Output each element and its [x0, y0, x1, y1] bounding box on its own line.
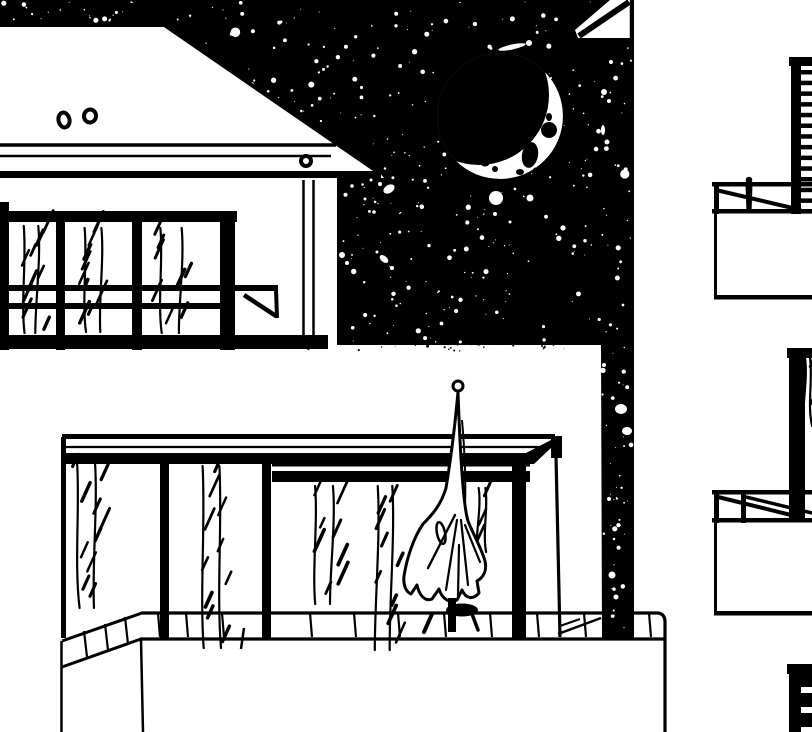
noise-speck: [368, 341, 369, 342]
star-icon: [493, 242, 494, 243]
star-icon: [373, 143, 374, 144]
noise-speck: [478, 343, 481, 346]
star-icon: [363, 281, 366, 284]
star-icon: [454, 309, 458, 313]
star-icon: [495, 311, 499, 315]
star-icon: [425, 101, 426, 102]
star-icon: [618, 519, 620, 521]
moon-crater-icon: [541, 122, 557, 138]
star-icon: [574, 251, 575, 252]
star-icon: [69, 2, 70, 3]
star-icon: [356, 217, 357, 218]
star-icon: [424, 32, 429, 37]
star-icon: [572, 252, 575, 255]
star-icon: [240, 12, 244, 16]
glass-left-post: [0, 202, 9, 350]
star-icon: [239, 1, 243, 5]
star-icon: [404, 152, 406, 154]
louver-window-bottom: [787, 664, 812, 732]
star-icon: [283, 38, 287, 42]
star-icon: [402, 134, 403, 135]
noise-speck: [395, 346, 396, 347]
splash-icon: [614, 595, 619, 600]
star-icon: [364, 187, 365, 188]
balcony-bottom-bar: [0, 335, 328, 349]
star-icon: [102, 16, 107, 21]
splash-icon: [526, 40, 532, 46]
star-icon: [624, 534, 625, 535]
star-icon: [391, 155, 392, 156]
star-icon: [613, 538, 616, 541]
splash-icon: [493, 212, 497, 216]
rail-bottom: [712, 209, 812, 214]
splash-icon: [609, 60, 613, 64]
star-icon: [412, 179, 414, 181]
splash-icon: [615, 404, 627, 414]
splash-icon: [390, 266, 394, 270]
louver-slat: [801, 188, 812, 193]
star-icon: [318, 71, 320, 73]
star-icon: [453, 249, 456, 252]
rail-top: [712, 490, 812, 495]
louver-slat: [801, 81, 812, 86]
star-icon: [604, 146, 609, 151]
star-icon: [322, 68, 325, 71]
star-icon: [621, 62, 624, 65]
star-icon: [623, 436, 624, 437]
star-icon: [122, 11, 123, 12]
splash-icon: [345, 261, 349, 265]
star-icon: [588, 173, 593, 178]
star-icon: [581, 168, 582, 169]
splash-icon: [509, 221, 512, 224]
splash-icon: [605, 140, 610, 145]
star-icon: [423, 179, 427, 183]
star-icon: [555, 233, 557, 235]
star-icon: [330, 98, 331, 99]
star-icon: [465, 220, 469, 224]
splash-icon: [489, 191, 503, 205]
star-icon: [556, 236, 561, 241]
curtain-fold-line: [485, 488, 486, 552]
star-icon: [586, 186, 588, 188]
star-icon: [630, 237, 631, 238]
star-icon: [394, 24, 397, 27]
star-icon: [609, 323, 612, 326]
star-icon: [617, 546, 621, 550]
star-icon: [616, 245, 621, 250]
star-icon: [340, 113, 341, 114]
star-icon: [373, 198, 374, 199]
star-icon: [400, 303, 401, 304]
star-icon: [449, 307, 450, 308]
star-icon: [613, 76, 618, 81]
star-icon: [334, 28, 335, 29]
noise-speck: [499, 344, 500, 345]
star-icon: [409, 62, 410, 63]
noise-speck: [381, 346, 382, 347]
star-icon: [459, 2, 460, 3]
star-icon: [361, 183, 364, 186]
star-icon: [628, 190, 630, 192]
star-icon: [115, 11, 118, 14]
star-icon: [505, 301, 506, 302]
star-icon: [627, 220, 628, 221]
star-icon: [582, 174, 584, 176]
star-icon: [590, 244, 592, 246]
header-line: [272, 464, 530, 467]
star-icon: [573, 108, 574, 109]
star-icon: [406, 281, 407, 282]
noise-speck: [553, 344, 555, 346]
star-icon: [416, 205, 418, 207]
star-icon: [569, 162, 570, 163]
star-icon: [393, 325, 394, 326]
star-icon: [531, 173, 532, 174]
star-icon: [473, 22, 477, 26]
splash-icon: [622, 427, 632, 435]
star-icon: [93, 18, 98, 23]
star-icon: [89, 15, 90, 16]
star-icon: [600, 368, 605, 373]
star-icon: [620, 487, 622, 489]
star-icon: [624, 103, 625, 104]
star-icon: [619, 260, 622, 263]
noise-speck: [444, 346, 446, 348]
star-icon: [523, 196, 525, 198]
louver-slat: [801, 156, 812, 161]
noise-speck: [345, 342, 346, 343]
star-icon: [109, 19, 111, 21]
star-icon: [410, 258, 412, 260]
rail-end-cap: [276, 289, 277, 318]
splash-icon: [343, 164, 348, 169]
star-icon: [541, 13, 546, 18]
star-icon: [483, 213, 484, 214]
noise-speck: [544, 346, 546, 348]
star-icon: [617, 268, 619, 270]
star-icon: [458, 298, 462, 302]
star-icon: [399, 213, 400, 214]
corner-post-left: [61, 437, 66, 638]
star-icon: [387, 138, 388, 139]
star-icon: [407, 29, 408, 30]
star-icon: [572, 69, 574, 71]
star-icon: [598, 318, 601, 321]
star-icon: [560, 225, 565, 230]
star-icon: [594, 81, 595, 82]
star-icon: [619, 475, 621, 477]
star-icon: [456, 214, 458, 216]
star-icon: [267, 90, 270, 93]
star-icon: [360, 96, 364, 100]
star-icon: [583, 239, 586, 242]
star-icon: [435, 341, 437, 343]
star-icon: [485, 314, 486, 315]
star-icon: [472, 272, 474, 274]
star-icon: [271, 78, 276, 83]
star-icon: [589, 318, 590, 319]
star-icon: [629, 443, 634, 448]
star-icon: [514, 188, 517, 191]
star-icon: [509, 244, 510, 245]
star-icon: [326, 65, 328, 67]
star-icon: [130, 1, 132, 3]
star-icon: [576, 291, 581, 296]
star-icon: [542, 338, 546, 342]
star-icon: [432, 30, 433, 31]
star-icon: [444, 309, 445, 310]
star-icon: [395, 304, 398, 307]
star-icon: [423, 146, 424, 147]
illustration-page: [0, 0, 812, 732]
star-icon: [132, 2, 133, 3]
moon-crater-icon: [458, 146, 464, 151]
star-icon: [594, 147, 599, 152]
noise-speck: [453, 350, 455, 352]
star-icon: [41, 18, 42, 19]
star-icon: [466, 205, 471, 210]
star-icon: [596, 129, 601, 134]
star-icon: [390, 276, 391, 277]
star-icon: [430, 338, 431, 339]
star-icon: [418, 202, 419, 203]
star-icon: [84, 9, 86, 11]
noise-speck: [448, 348, 450, 350]
star-icon: [507, 273, 508, 274]
star-icon: [408, 231, 410, 233]
star-icon: [25, 7, 27, 9]
star-icon: [386, 332, 388, 334]
splash-icon: [378, 182, 382, 186]
noise-speck: [321, 342, 322, 343]
slab-edge: [714, 522, 717, 613]
star-icon: [459, 340, 462, 343]
star-icon: [384, 167, 387, 170]
corner-post-right-stub: [551, 436, 562, 458]
star-icon: [398, 64, 402, 68]
louver-slat: [801, 113, 812, 118]
louver-slat-gap: [801, 687, 812, 693]
splash-icon: [527, 195, 534, 202]
star-icon: [22, 2, 26, 6]
star-icon: [319, 11, 320, 12]
moon-crater-icon: [499, 135, 513, 147]
star-icon: [623, 502, 625, 504]
star-icon: [225, 18, 226, 19]
star-icon: [475, 295, 476, 296]
star-icon: [468, 27, 469, 28]
star-icon: [549, 176, 551, 178]
star-icon: [586, 159, 587, 160]
star-icon: [421, 231, 422, 232]
star-icon: [616, 487, 617, 488]
moon-crater-icon: [516, 169, 524, 175]
star-icon: [536, 31, 539, 34]
star-icon: [410, 11, 411, 12]
star-icon: [412, 104, 414, 106]
star-icon: [398, 231, 401, 234]
star-icon: [612, 526, 617, 531]
star-icon: [389, 266, 390, 267]
star-icon: [333, 93, 335, 95]
star-icon: [390, 203, 391, 204]
noise-speck: [459, 350, 460, 351]
star-icon: [427, 244, 430, 247]
splash-icon: [364, 198, 367, 201]
star-icon: [470, 196, 471, 197]
star-icon: [601, 234, 603, 236]
star-icon: [343, 240, 345, 242]
star-icon: [569, 93, 571, 95]
star-icon: [590, 2, 591, 3]
star-icon: [625, 385, 629, 389]
star-icon: [412, 49, 417, 54]
noise-speck: [486, 341, 488, 343]
splash-icon: [607, 99, 611, 103]
star-icon: [351, 326, 355, 330]
star-icon: [611, 588, 612, 589]
star-icon: [371, 25, 373, 27]
star-icon: [607, 245, 608, 246]
louver-slat: [801, 91, 812, 96]
star-icon: [357, 235, 358, 236]
star-icon: [573, 185, 575, 187]
curtain-fold-line: [202, 466, 203, 648]
star-icon: [502, 19, 503, 20]
star-icon: [584, 254, 585, 255]
star-icon: [189, 17, 190, 18]
star-icon: [549, 73, 550, 74]
noise-speck: [322, 343, 323, 344]
star-icon: [483, 299, 484, 300]
star-icon: [300, 9, 301, 10]
star-icon: [371, 54, 375, 58]
pergola-roof-line: [62, 434, 555, 439]
star-icon: [423, 336, 427, 340]
louver-slat: [801, 166, 812, 171]
star-icon: [393, 151, 395, 153]
star-icon: [290, 89, 293, 92]
noise-speck: [358, 349, 360, 351]
slab-bottom: [714, 295, 812, 300]
star-icon: [606, 331, 607, 332]
star-icon: [437, 141, 439, 143]
star-icon: [425, 281, 426, 282]
star-icon: [503, 318, 504, 319]
star-icon: [294, 101, 295, 102]
star-icon: [620, 169, 629, 178]
noise-speck: [429, 340, 431, 342]
star-icon: [612, 353, 613, 354]
fascia-band: [0, 171, 381, 178]
star-icon: [501, 192, 502, 193]
star-icon: [623, 627, 624, 628]
moon-crater-icon: [546, 113, 552, 121]
star-icon: [431, 23, 433, 25]
star-icon: [617, 164, 620, 167]
star-icon: [536, 25, 537, 26]
star-icon: [485, 271, 486, 272]
star-icon: [545, 30, 546, 31]
fascia-ring-icon: [301, 156, 311, 166]
star-icon: [542, 325, 545, 328]
star-icon: [377, 47, 379, 49]
star-icon: [222, 10, 223, 11]
star-icon: [409, 155, 410, 156]
star-icon: [1, 1, 6, 6]
louver-slat-gap: [801, 707, 812, 713]
noise-speck: [415, 344, 417, 346]
star-icon: [495, 239, 496, 240]
star-icon: [391, 292, 395, 296]
star-icon: [601, 95, 604, 98]
star-icon: [351, 254, 353, 256]
noise-speck: [541, 345, 543, 347]
star-icon: [278, 97, 279, 98]
louver-block: [801, 674, 812, 732]
star-icon: [427, 187, 429, 189]
star-icon: [419, 165, 421, 167]
star-icon: [444, 19, 449, 24]
star-icon: [294, 17, 295, 18]
star-icon: [572, 301, 573, 302]
star-icon: [477, 217, 478, 218]
star-icon: [112, 14, 113, 15]
noise-speck: [483, 346, 485, 348]
star-icon: [613, 610, 615, 612]
star-icon: [212, 7, 213, 8]
star-icon: [613, 564, 614, 565]
glass-top-bar: [4, 211, 237, 222]
star-icon: [583, 112, 585, 114]
noise-speck: [433, 343, 434, 344]
louver-bar: [791, 57, 801, 214]
star-icon: [231, 28, 241, 38]
noise-speck: [543, 348, 544, 349]
star-icon: [613, 499, 614, 500]
star-icon: [394, 12, 398, 16]
star-icon: [362, 248, 363, 249]
splash-icon: [350, 184, 354, 188]
glass-mullion: [56, 211, 65, 350]
distant-figure-body: [746, 184, 753, 213]
star-icon: [441, 174, 442, 175]
star-icon: [353, 60, 354, 61]
star-icon: [606, 425, 607, 426]
louver-slat: [801, 70, 812, 75]
star-icon: [363, 313, 367, 317]
star-icon: [440, 322, 444, 326]
star-icon: [368, 210, 371, 213]
noise-speck: [438, 341, 439, 342]
moon-crater-icon: [481, 160, 490, 167]
star-icon: [308, 82, 314, 88]
star-icon: [482, 276, 484, 278]
louver-slat: [801, 124, 812, 129]
star-icon: [374, 201, 377, 204]
moon-crater-icon: [492, 166, 498, 172]
star-icon: [428, 326, 429, 327]
slab-bottom: [714, 611, 812, 616]
star-icon: [611, 396, 615, 400]
louver-slat: [801, 198, 812, 203]
noise-speck: [316, 345, 317, 346]
star-icon: [612, 587, 616, 591]
star-icon: [177, 19, 179, 21]
noise-speck: [308, 348, 309, 349]
star-icon: [248, 69, 249, 70]
